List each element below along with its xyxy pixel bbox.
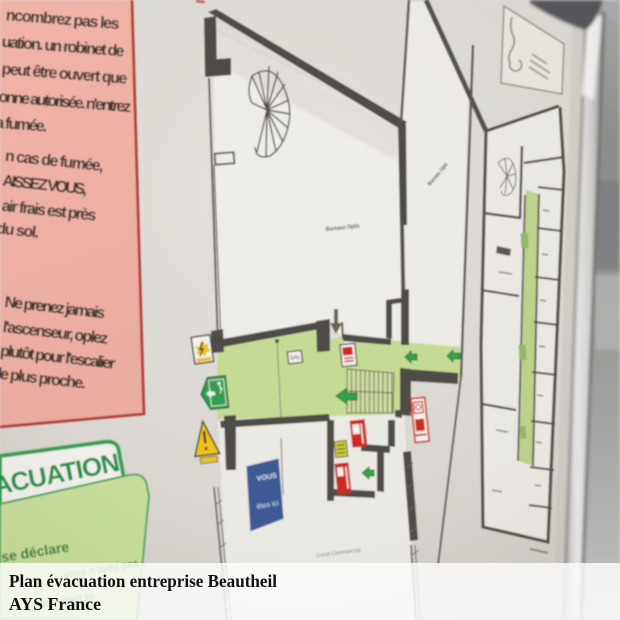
svg-text:AYS France: AYS France bbox=[9, 594, 101, 614]
svg-text:Plan évacuation entreprise Bea: Plan évacuation entreprise Beautheil bbox=[9, 571, 277, 591]
